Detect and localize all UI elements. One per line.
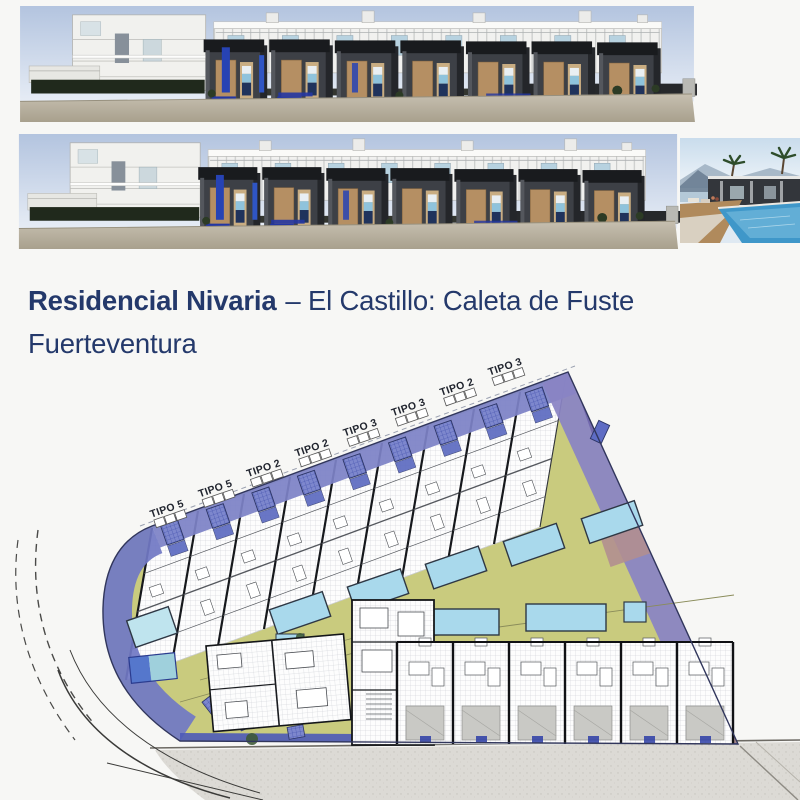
title-main: Residencial Nivaria <box>28 285 276 316</box>
band-notch <box>590 420 609 443</box>
title-subtitle: – El Castillo: Caleta de Fuste <box>285 285 634 316</box>
site-plan: TIPO 5TIPO 5TIPO 2TIPO 2TIPO 3TIPO 3TIPO… <box>0 350 800 800</box>
elevation-rendering-middle <box>13 134 683 249</box>
elevation-rendering-top <box>14 6 700 122</box>
pool-photo <box>680 138 800 243</box>
lower-unit-plans <box>397 638 733 744</box>
brochure-page: Residencial Nivaria– El Castillo: Caleta… <box>0 0 800 800</box>
street <box>150 740 800 800</box>
title-line-1: Residencial Nivaria– El Castillo: Caleta… <box>28 279 778 322</box>
